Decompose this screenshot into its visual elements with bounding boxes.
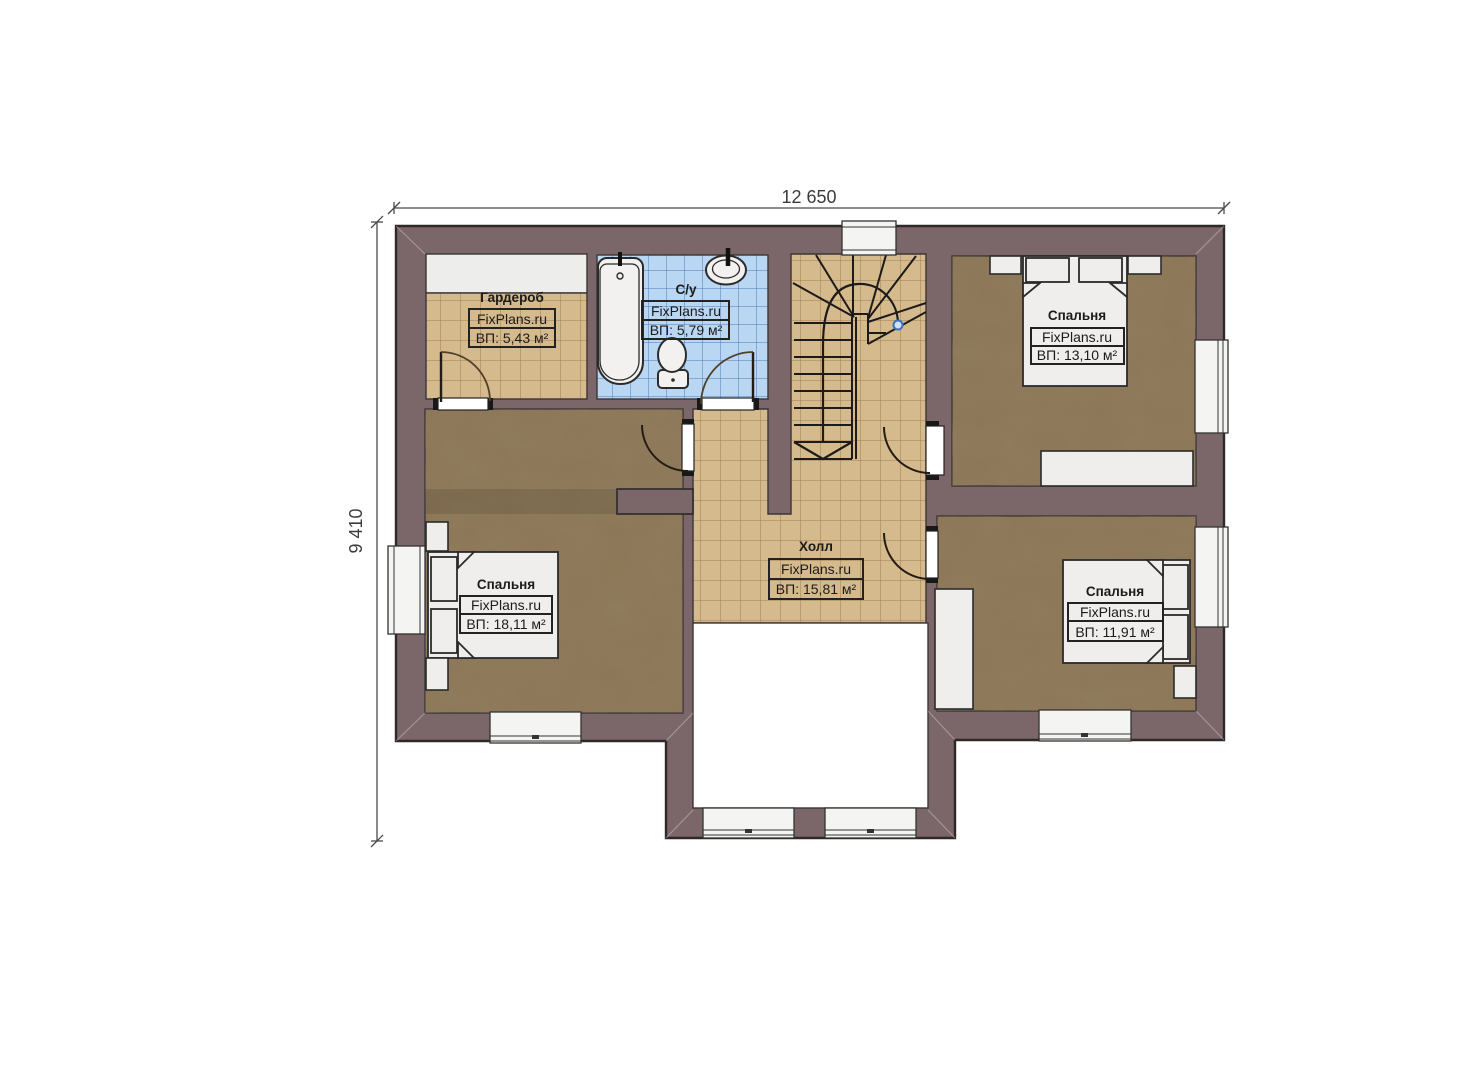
svg-text:ВП: 5,79 м²: ВП: 5,79 м² <box>650 322 723 338</box>
svg-text:Спальня: Спальня <box>1048 308 1106 323</box>
svg-text:ВП: 18,11 м²: ВП: 18,11 м² <box>466 616 546 632</box>
svg-text:FixPlans.ru: FixPlans.ru <box>471 597 541 613</box>
svg-text:ВП: 5,43 м²: ВП: 5,43 м² <box>476 330 549 346</box>
svg-text:ВП: 11,91 м²: ВП: 11,91 м² <box>1075 624 1155 640</box>
svg-text:С/у: С/у <box>675 282 697 297</box>
svg-text:12 650: 12 650 <box>781 187 836 207</box>
svg-text:Спальня: Спальня <box>477 577 535 592</box>
svg-text:Холл: Холл <box>799 539 833 554</box>
svg-text:FixPlans.ru: FixPlans.ru <box>781 561 851 577</box>
svg-text:ВП: 13,10 м²: ВП: 13,10 м² <box>1037 347 1118 363</box>
svg-text:FixPlans.ru: FixPlans.ru <box>1080 604 1150 620</box>
svg-text:Гардероб: Гардероб <box>480 290 544 305</box>
svg-text:9 410: 9 410 <box>346 508 366 553</box>
svg-text:FixPlans.ru: FixPlans.ru <box>477 311 547 327</box>
svg-text:FixPlans.ru: FixPlans.ru <box>1042 329 1112 345</box>
svg-text:Спальня: Спальня <box>1086 584 1144 599</box>
svg-text:ВП: 15,81 м²: ВП: 15,81 м² <box>776 581 857 597</box>
svg-text:FixPlans.ru: FixPlans.ru <box>651 303 721 319</box>
